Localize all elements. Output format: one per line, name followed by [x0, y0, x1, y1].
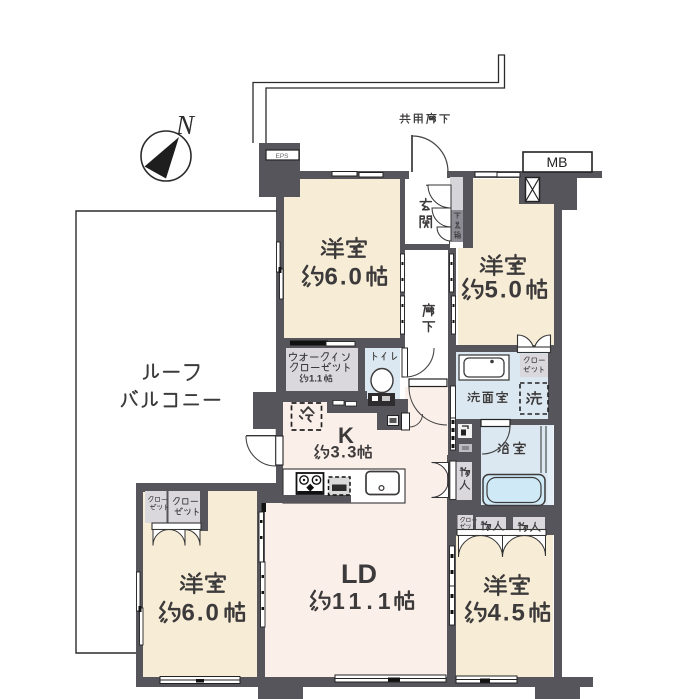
svg-text:MB: MB	[547, 154, 568, 170]
svg-text:6.0: 6.0	[325, 264, 364, 291]
svg-text:3.3: 3.3	[331, 444, 358, 462]
svg-text:EPS: EPS	[275, 153, 289, 160]
svg-text:5.0: 5.0	[485, 277, 524, 304]
svg-text:LD: LD	[341, 559, 377, 589]
svg-text:N: N	[175, 110, 196, 140]
svg-text:1.1: 1.1	[309, 374, 323, 385]
svg-text:6.0: 6.0	[182, 600, 221, 627]
svg-text:4.5: 4.5	[488, 600, 527, 627]
svg-text:11.1: 11.1	[332, 588, 396, 614]
